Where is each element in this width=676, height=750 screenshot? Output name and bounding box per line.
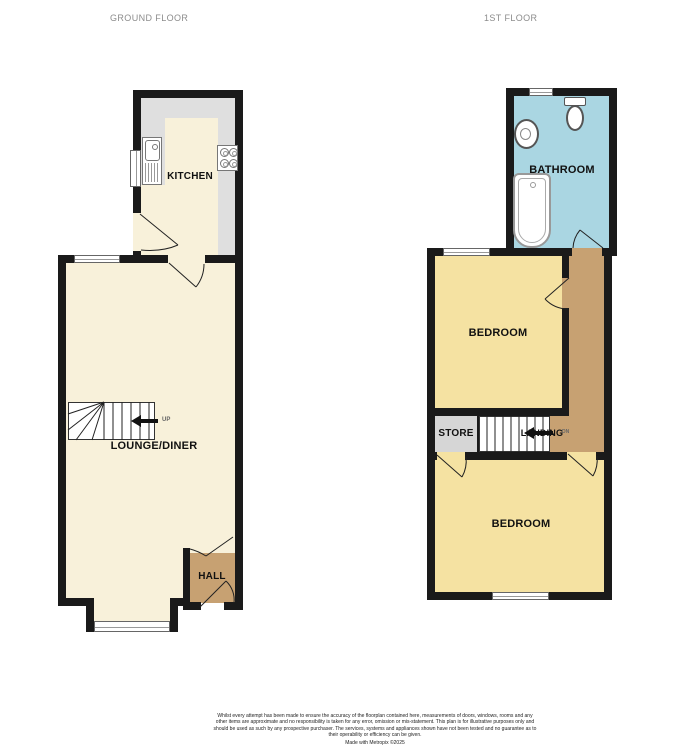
kitchen-floor	[165, 118, 218, 255]
first-floor-title: 1ST FLOOR	[484, 13, 537, 23]
bedroom-front-window	[443, 248, 490, 256]
sink-tap	[152, 144, 158, 150]
kitchen-label: KITCHEN	[140, 171, 240, 182]
bathroom-wall-top	[506, 88, 617, 96]
bathtub-icon	[513, 173, 551, 248]
floorplan-canvas: GROUND FLOOR 1ST FLOOR KITCHEN LOUNGE/DI…	[0, 0, 676, 750]
footer-disclaimer: Whilst every attempt has been made to en…	[213, 713, 537, 746]
stairs-ground	[68, 402, 155, 440]
lounge-wall-left	[58, 255, 66, 606]
sink-bowl	[145, 140, 160, 161]
hob-burner	[220, 148, 229, 157]
bedroom-back-door-gap-right	[567, 452, 596, 460]
bedroom-front-label: BEDROOM	[438, 327, 558, 339]
disclaimer-text: Whilst every attempt has been made to en…	[213, 713, 537, 739]
hob-burner	[229, 159, 238, 168]
store-label: STORE	[433, 428, 479, 439]
wall-below-bedroom-front	[427, 408, 569, 416]
bedroom-front-door-gap	[562, 278, 569, 308]
hob-icon	[217, 145, 238, 171]
bay-window	[94, 621, 170, 632]
first-floor-wall-left	[427, 248, 435, 600]
kitchen-wall-top	[133, 90, 243, 98]
kitchen-door-gap	[133, 213, 141, 251]
bathtub-tap	[530, 182, 536, 188]
stairs-up-label: UP	[162, 417, 170, 423]
bathroom-door-gap	[572, 248, 602, 256]
bedroom-back-label: BEDROOM	[451, 518, 591, 530]
hall-label: HALL	[187, 571, 237, 582]
first-floor-wall-right	[604, 248, 612, 600]
bathroom-label: BATHROOM	[512, 164, 612, 176]
hob-burner	[220, 159, 229, 168]
ground-floor-title: GROUND FLOOR	[110, 13, 188, 23]
bay-wall-left	[86, 598, 94, 632]
lounge-window-top	[74, 255, 120, 263]
bay-floor	[94, 600, 170, 622]
metropix-credit: Made with Metropix ©2025	[213, 740, 537, 746]
bedroom-back-window	[492, 592, 549, 600]
lounge-wall-right	[235, 255, 243, 610]
hall-wall-bottom-right	[224, 602, 243, 610]
stairs-down-label: DN	[562, 429, 569, 435]
kitchen-floor-lower	[141, 185, 167, 255]
kitchen-lounge-door-gap	[168, 255, 205, 263]
hob-burner	[229, 148, 238, 157]
bathroom-window	[529, 88, 553, 96]
toilet-bowl	[566, 105, 584, 131]
hall-wall-bottom-left	[183, 602, 201, 610]
basin-icon	[514, 119, 539, 149]
lounge-diner-label: LOUNGE/DINER	[74, 440, 234, 452]
bedroom-back-door-gap-left	[437, 452, 465, 460]
